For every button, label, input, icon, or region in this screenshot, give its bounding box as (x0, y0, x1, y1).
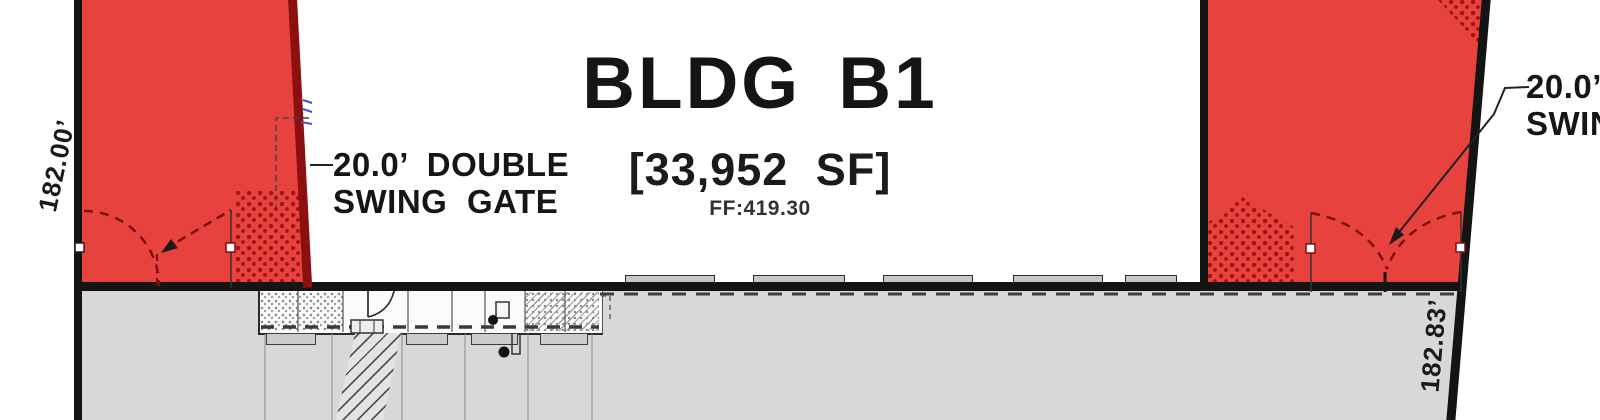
west-gate-label-line2: SWING GATE (333, 183, 569, 220)
west-gate-label-line1: 20.0’ DOUBLE (333, 146, 569, 183)
east-gate-label-line2: SWING GATE (1526, 105, 1600, 142)
gate-arrowhead (161, 239, 178, 253)
gate-hinge (75, 243, 84, 252)
east-swing-gate (1306, 212, 1465, 292)
door-swing (368, 291, 394, 317)
pavement-joints (265, 334, 592, 420)
blue-dimension-tick (301, 100, 312, 124)
gate-hinge (1456, 243, 1465, 252)
building-area-label: [33,952 SF] (600, 144, 920, 196)
gate-leaf-open (165, 210, 231, 249)
gate-hinge (226, 243, 235, 252)
gate-hinge (1306, 244, 1315, 253)
east-gate-label: 20.0’ DOUBLE SWING GATE (1526, 68, 1600, 142)
west-swing-gate (75, 100, 312, 288)
utility-fixture (488, 302, 520, 358)
east-gate-label-line1: 20.0’ DOUBLE (1526, 68, 1600, 105)
building-title: BLDG B1 (565, 42, 955, 125)
gate-leaf-arc (1311, 213, 1387, 269)
gate-pocket-dashed (276, 118, 309, 208)
equipment-pad (351, 320, 383, 333)
west-gate-label: 20.0’ DOUBLE SWING GATE (333, 146, 569, 220)
finished-floor-label: FF:419.30 (640, 197, 880, 221)
gate-leaf-arc (84, 211, 159, 286)
dashed-corner (601, 296, 610, 321)
site-plan: BLDG B1 [33,952 SF] FF:419.30 20.0’ DOUB… (0, 0, 1600, 420)
gate-leaf-arc (1387, 212, 1461, 269)
